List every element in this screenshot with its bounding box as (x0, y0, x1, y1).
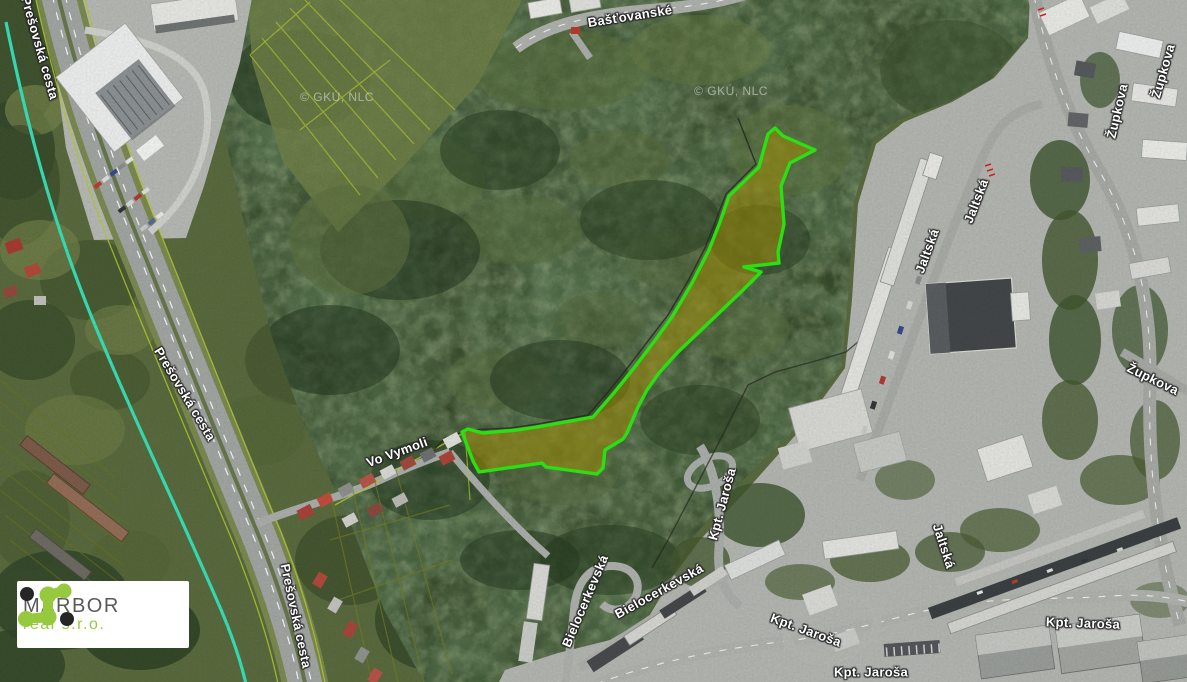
marbor-logo-icon (17, 581, 79, 633)
photo-grain (0, 0, 1187, 682)
company-logo: MARBOR real s.r.o. (17, 581, 189, 648)
provider-watermark: © GKÚ, NLC (694, 84, 768, 98)
provider-watermark: © GKÚ, NLC (300, 90, 374, 104)
aerial-imagery (0, 0, 1187, 682)
map-viewport: Prešovská cestaPrešovská cestaPrešovská … (0, 0, 1187, 682)
